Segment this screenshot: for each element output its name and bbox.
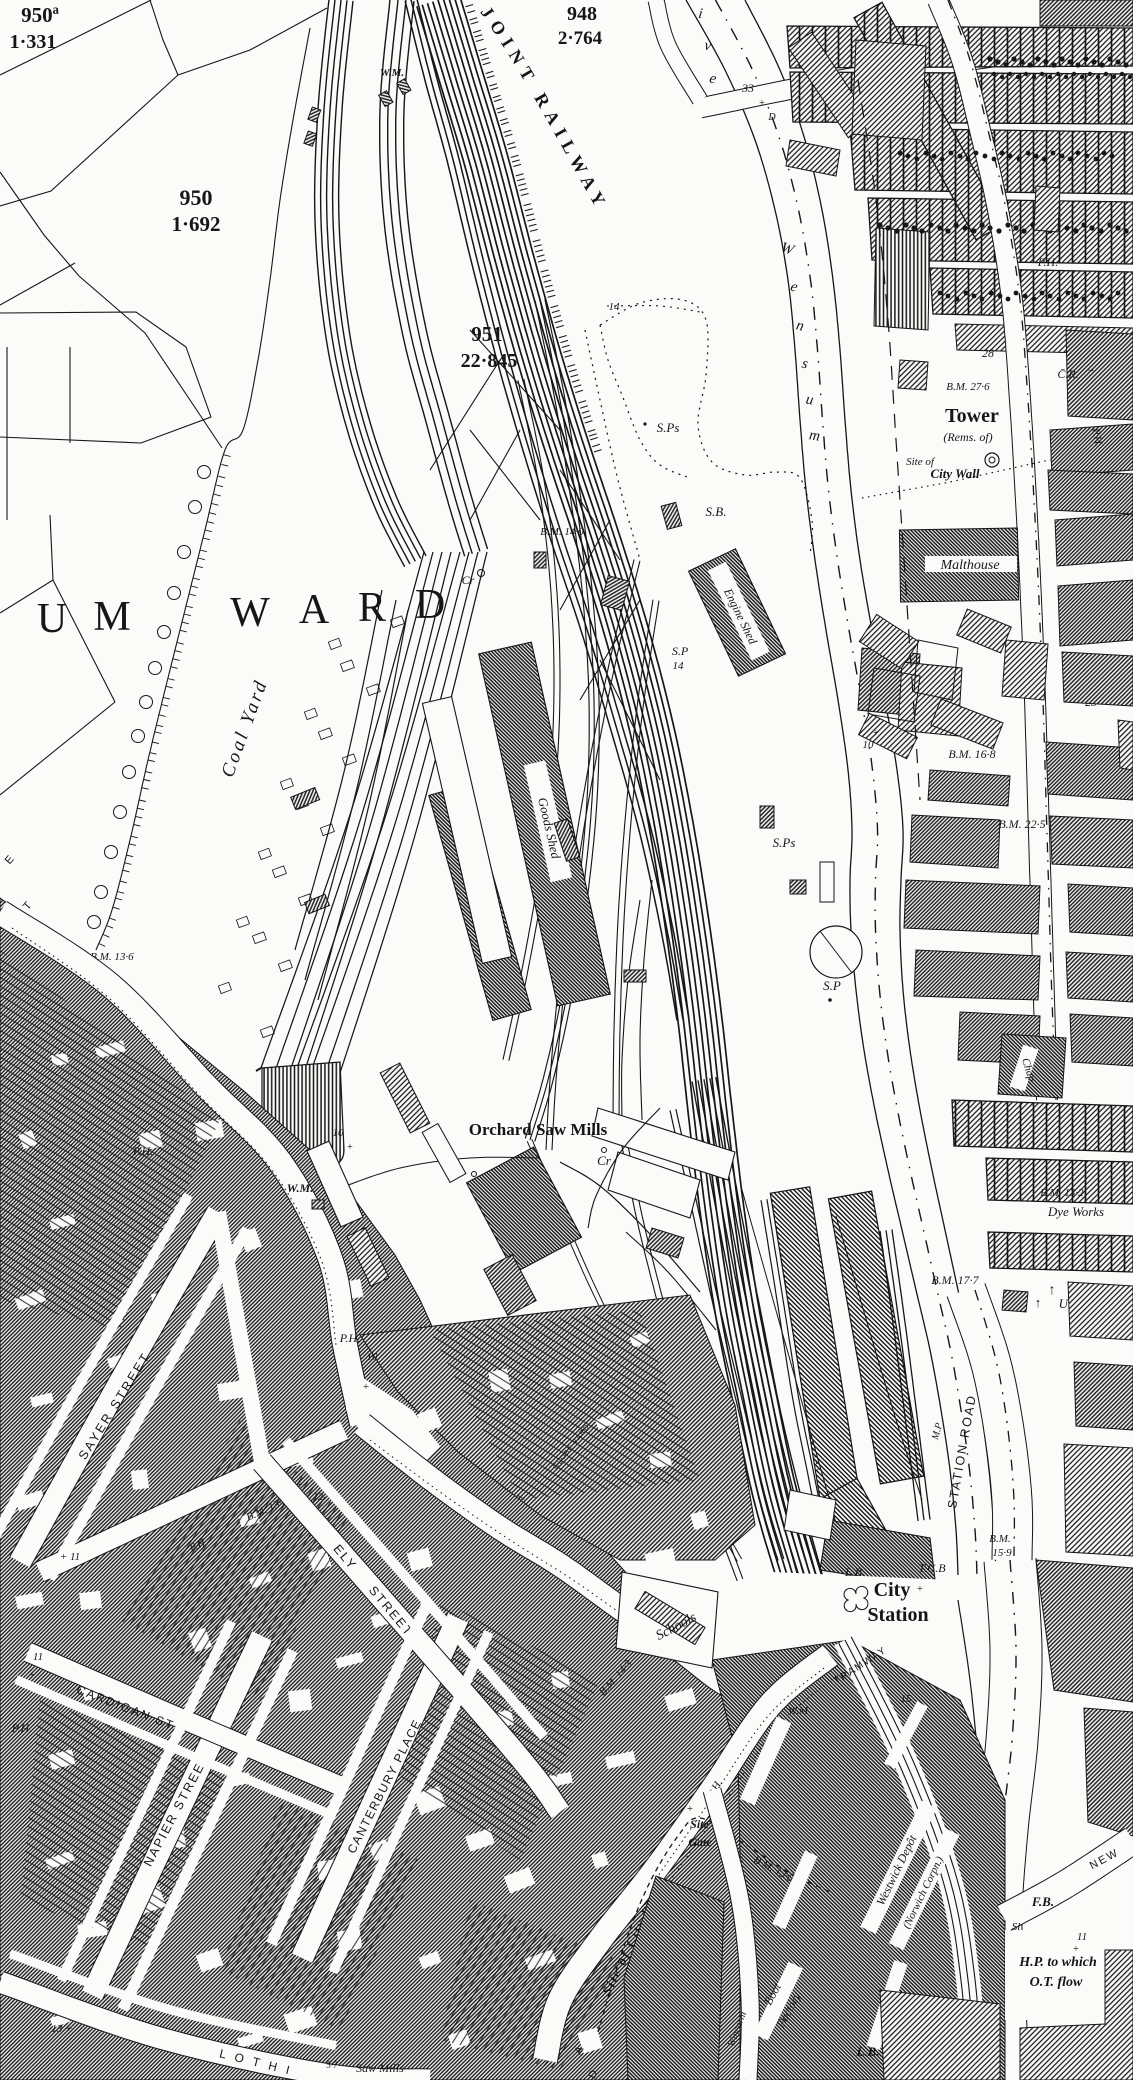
- svg-text:+: +: [1073, 1944, 1079, 1955]
- svg-text:Tower: Tower: [945, 405, 999, 427]
- svg-text:B.M. 22·5: B.M. 22·5: [998, 817, 1045, 831]
- svg-text:P.H.: P.H.: [11, 1721, 32, 1735]
- svg-text:→: →: [1084, 361, 1096, 375]
- svg-text:948: 948: [567, 3, 597, 25]
- svg-text:D: D: [415, 582, 445, 628]
- svg-text:W: W: [230, 590, 270, 636]
- svg-text:(Rems. of): (Rems. of): [943, 430, 992, 444]
- svg-text:Sl: Sl: [1012, 1921, 1021, 1933]
- svg-text:D: D: [767, 112, 776, 123]
- svg-text:S.B.: S.B.: [706, 504, 727, 519]
- svg-text:2·764: 2·764: [558, 28, 603, 49]
- svg-text:10: 10: [333, 1127, 345, 1139]
- svg-text:+: +: [29, 1670, 35, 1681]
- svg-text:33: 33: [741, 81, 754, 95]
- svg-text:+: +: [873, 728, 879, 739]
- svg-text:City Wall: City Wall: [931, 466, 980, 481]
- svg-text:28: 28: [982, 346, 994, 360]
- svg-text:City: City: [874, 1579, 911, 1601]
- svg-text:Malthouse: Malthouse: [939, 558, 999, 573]
- svg-text:14: 14: [609, 301, 621, 313]
- svg-text:Orchard Saw Mills: Orchard Saw Mills: [469, 1120, 608, 1139]
- svg-text:B.M. 16·8: B.M. 16·8: [948, 747, 995, 761]
- svg-text:Dye Works: Dye Works: [1047, 1204, 1104, 1219]
- svg-text:S.P: S.P: [823, 978, 841, 993]
- svg-text:11: 11: [1077, 1931, 1087, 1943]
- svg-text:P.H.: P.H.: [1037, 255, 1058, 269]
- svg-text:L.B.: L.B.: [855, 2044, 879, 2059]
- svg-text:1·692: 1·692: [171, 212, 220, 236]
- svg-text:L.B.: L.B.: [844, 1565, 865, 1579]
- svg-text:950ª: 950ª: [21, 3, 60, 27]
- svg-text:+: +: [917, 1584, 923, 1595]
- svg-text:P.H.: P.H.: [132, 1144, 153, 1158]
- svg-text:15: 15: [901, 1693, 913, 1705]
- svg-text:W.M.: W.M.: [380, 67, 404, 79]
- svg-text:1·331: 1·331: [10, 31, 57, 53]
- svg-text:13 +: 13 +: [51, 2023, 72, 2035]
- svg-text:+ 11: + 11: [60, 1551, 80, 1563]
- svg-text:22·845: 22·845: [461, 350, 518, 372]
- svg-text:C̄.R.: C̄.R.: [1057, 367, 1078, 381]
- svg-text:H.P. to which: H.P. to which: [1018, 1955, 1097, 1970]
- svg-text:10: 10: [863, 739, 875, 751]
- svg-text:S.Ps: S.Ps: [773, 835, 796, 850]
- svg-text:T.C.B: T.C.B: [918, 1561, 946, 1575]
- svg-text:Cr: Cr: [462, 573, 475, 587]
- svg-text:S.P: S.P: [672, 644, 689, 658]
- svg-text:B.M. 27·6: B.M. 27·6: [946, 381, 990, 393]
- svg-text:O.T. flow: O.T. flow: [1030, 1975, 1083, 1990]
- svg-text:M: M: [93, 594, 130, 640]
- svg-text:A: A: [299, 587, 330, 633]
- svg-text:5·7: 5·7: [326, 2060, 338, 2070]
- svg-text:W.M.: W.M.: [287, 1181, 313, 1195]
- svg-text:+: +: [687, 1803, 693, 1815]
- svg-text:B.M. 17·7: B.M. 17·7: [931, 1273, 979, 1287]
- svg-text:S.Ps: S.Ps: [657, 420, 680, 435]
- svg-text:+: +: [347, 1142, 353, 1153]
- svg-text:950: 950: [180, 185, 213, 210]
- svg-text:U: U: [37, 596, 67, 642]
- svg-text:10: 10: [367, 1351, 379, 1363]
- svg-text:↑: ↑: [1049, 1283, 1056, 1298]
- svg-text:12: 12: [313, 1492, 323, 1503]
- svg-text:Station: Station: [867, 1604, 928, 1626]
- svg-text:15·9: 15·9: [992, 1547, 1012, 1559]
- svg-text:B.M.: B.M.: [989, 1533, 1010, 1545]
- svg-text:B.M. 14·0: B.M. 14·0: [540, 526, 584, 538]
- svg-text:W.M: W.M: [788, 1705, 809, 1717]
- svg-text:Gate: Gate: [688, 1835, 712, 1849]
- svg-text:Cr: Cr: [597, 1153, 612, 1168]
- svg-text:11: 11: [33, 1651, 43, 1663]
- svg-text:P.H.: P.H.: [339, 1331, 360, 1345]
- svg-text:+: +: [759, 98, 765, 109]
- svg-text:Saw Mills: Saw Mills: [356, 2061, 404, 2075]
- svg-text:14: 14: [673, 660, 685, 672]
- svg-text:↑: ↑: [1035, 1295, 1042, 1310]
- svg-text:F.B.: F.B.: [1031, 1894, 1054, 1909]
- svg-text:+: +: [363, 1381, 369, 1393]
- svg-text:R: R: [358, 585, 386, 631]
- svg-text:B.M. 13·2: B.M. 13·2: [1040, 1187, 1084, 1199]
